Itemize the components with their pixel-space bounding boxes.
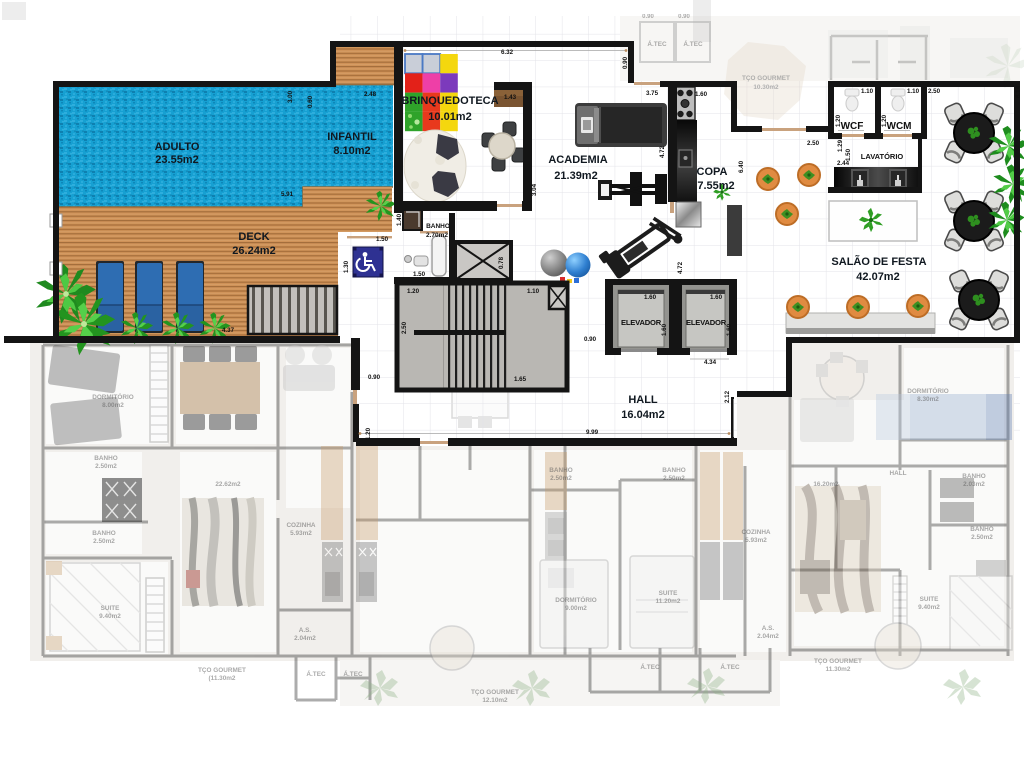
svg-text:4.72: 4.72 xyxy=(659,145,666,158)
svg-text:9.40m2: 9.40m2 xyxy=(918,604,940,611)
svg-text:DECK: DECK xyxy=(238,231,269,243)
svg-text:SUITE: SUITE xyxy=(659,590,679,597)
svg-text:2.03m2: 2.03m2 xyxy=(963,481,985,488)
svg-text:TÇO GOURMET: TÇO GOURMET xyxy=(742,75,790,82)
svg-text:9.40m2: 9.40m2 xyxy=(99,613,121,620)
svg-text:Á.TEC: Á.TEC xyxy=(647,39,667,48)
svg-text:0.90: 0.90 xyxy=(584,336,597,343)
svg-text:BANHO: BANHO xyxy=(662,467,685,474)
svg-text:1.50: 1.50 xyxy=(413,271,426,278)
svg-text:1.60: 1.60 xyxy=(695,91,708,98)
svg-text:1.20: 1.20 xyxy=(365,427,372,440)
svg-text:4.37: 4.37 xyxy=(222,327,235,334)
svg-text:2.50m2: 2.50m2 xyxy=(663,475,685,482)
svg-text:ADULTO: ADULTO xyxy=(155,141,200,153)
svg-text:LAVATÓRIO: LAVATÓRIO xyxy=(861,152,904,161)
svg-text:22.62m2: 22.62m2 xyxy=(215,481,241,488)
svg-text:42.07m2: 42.07m2 xyxy=(856,271,899,283)
svg-text:1.50: 1.50 xyxy=(376,236,389,243)
svg-text:0.90: 0.90 xyxy=(622,56,629,69)
svg-text:9.99: 9.99 xyxy=(586,429,599,436)
svg-text:8.00m2: 8.00m2 xyxy=(102,402,124,409)
svg-text:BANHO: BANHO xyxy=(92,530,115,537)
svg-text:1.10: 1.10 xyxy=(907,88,920,95)
svg-text:BANHO: BANHO xyxy=(426,223,450,230)
svg-text:SALÃO DE FESTA: SALÃO DE FESTA xyxy=(831,255,926,268)
svg-text:2.44: 2.44 xyxy=(837,160,850,167)
svg-text:1.10: 1.10 xyxy=(527,288,540,295)
svg-text:2.48: 2.48 xyxy=(364,91,377,98)
svg-text:ELEVADOR: ELEVADOR xyxy=(686,318,727,327)
svg-text:1.30: 1.30 xyxy=(343,260,350,273)
svg-text:BANHO: BANHO xyxy=(962,473,985,480)
svg-text:SUITE: SUITE xyxy=(920,596,940,603)
svg-text:2.12: 2.12 xyxy=(724,390,731,403)
svg-text:Á.TEC: Á.TEC xyxy=(306,669,326,678)
svg-text:COPA: COPA xyxy=(697,166,728,178)
svg-text:INFANTIL: INFANTIL xyxy=(327,131,377,143)
svg-text:1.20: 1.20 xyxy=(407,288,420,295)
svg-text:0.90: 0.90 xyxy=(678,14,690,20)
svg-text:DORMITÓRIO: DORMITÓRIO xyxy=(555,595,597,604)
svg-text:ACADEMIA: ACADEMIA xyxy=(548,154,607,166)
svg-text:HALL: HALL xyxy=(628,394,658,406)
svg-text:1.60: 1.60 xyxy=(644,294,657,301)
svg-text:0.90: 0.90 xyxy=(642,14,654,20)
svg-text:9.00m2: 9.00m2 xyxy=(565,605,587,612)
svg-text:2.50: 2.50 xyxy=(401,321,408,334)
svg-text:2.04m2: 2.04m2 xyxy=(294,635,316,642)
svg-text:BANHO: BANHO xyxy=(970,526,993,533)
svg-text:3.75: 3.75 xyxy=(646,90,659,97)
svg-text:4.72: 4.72 xyxy=(677,261,684,274)
svg-text:COZINHA: COZINHA xyxy=(741,529,770,536)
svg-text:BANHO: BANHO xyxy=(94,455,117,462)
svg-text:COZINHA: COZINHA xyxy=(286,522,315,529)
svg-text:5.93m2: 5.93m2 xyxy=(290,530,312,537)
svg-text:0.78: 0.78 xyxy=(498,256,505,269)
svg-text:1.20: 1.20 xyxy=(835,114,842,127)
svg-text:5.91: 5.91 xyxy=(281,191,294,198)
svg-text:Á.TEC: Á.TEC xyxy=(343,669,363,678)
svg-text:HALL: HALL xyxy=(889,470,906,477)
svg-text:3.00: 3.00 xyxy=(287,90,294,103)
svg-text:11.20m2: 11.20m2 xyxy=(656,598,681,605)
svg-text:A.S.: A.S. xyxy=(762,625,775,632)
svg-text:1.29: 1.29 xyxy=(837,139,844,152)
svg-text:BANHO: BANHO xyxy=(549,467,572,474)
svg-text:23.55m2: 23.55m2 xyxy=(155,154,198,166)
svg-text:A.S.: A.S. xyxy=(299,627,312,634)
svg-text:2.50m2: 2.50m2 xyxy=(95,463,117,470)
svg-text:8.10m2: 8.10m2 xyxy=(333,145,370,157)
svg-text:ELEVADOR: ELEVADOR xyxy=(621,318,662,327)
svg-text:BRINQUEDOTECA: BRINQUEDOTECA xyxy=(401,95,498,107)
svg-text:10.01m2: 10.01m2 xyxy=(428,111,471,123)
svg-text:DORMITÓRIO: DORMITÓRIO xyxy=(92,392,134,401)
svg-text:10.30m2: 10.30m2 xyxy=(753,84,779,91)
svg-text:11.30m2: 11.30m2 xyxy=(826,666,851,673)
svg-text:0.60: 0.60 xyxy=(307,95,314,108)
svg-text:1.60: 1.60 xyxy=(710,294,723,301)
svg-text:16.04m2: 16.04m2 xyxy=(621,409,664,421)
svg-text:1.60: 1.60 xyxy=(661,323,668,336)
svg-text:2.70m2: 2.70m2 xyxy=(426,232,448,239)
svg-text:1.43: 1.43 xyxy=(504,94,517,101)
svg-text:(11.30m2: (11.30m2 xyxy=(208,675,235,682)
svg-text:26.24m2: 26.24m2 xyxy=(232,245,275,257)
svg-text:TÇO GOURMET: TÇO GOURMET xyxy=(198,667,246,674)
svg-text:6.40: 6.40 xyxy=(738,160,745,173)
svg-text:6.32: 6.32 xyxy=(501,49,514,56)
svg-text:7.55m2: 7.55m2 xyxy=(697,180,734,192)
svg-text:Á.TEC: Á.TEC xyxy=(720,662,740,671)
svg-text:2.50m2: 2.50m2 xyxy=(550,475,572,482)
svg-text:3.04: 3.04 xyxy=(531,183,538,196)
svg-text:1.60: 1.60 xyxy=(726,323,733,336)
svg-text:1.20: 1.20 xyxy=(881,114,888,127)
svg-text:16.20m2: 16.20m2 xyxy=(813,481,839,488)
svg-text:0.90: 0.90 xyxy=(368,374,381,381)
svg-text:12.10m2: 12.10m2 xyxy=(482,697,508,704)
svg-text:TÇO GOURMET: TÇO GOURMET xyxy=(471,689,519,696)
svg-text:DORMITÓRIO: DORMITÓRIO xyxy=(907,386,949,395)
svg-text:8.30m2: 8.30m2 xyxy=(917,396,939,403)
svg-text:Á.TEC: Á.TEC xyxy=(640,662,660,671)
svg-text:4.34: 4.34 xyxy=(704,359,717,366)
svg-text:1.40: 1.40 xyxy=(396,213,403,226)
svg-text:5.93m2: 5.93m2 xyxy=(745,537,767,544)
svg-text:2.50m2: 2.50m2 xyxy=(93,538,115,545)
svg-text:2.50m2: 2.50m2 xyxy=(971,534,993,541)
svg-text:6.14: 6.14 xyxy=(1015,85,1022,98)
svg-text:SUITE: SUITE xyxy=(101,605,121,612)
svg-text:1.65: 1.65 xyxy=(514,376,527,383)
svg-text:2.50: 2.50 xyxy=(928,88,941,95)
svg-text:2.04m2: 2.04m2 xyxy=(757,633,779,640)
svg-text:2.50: 2.50 xyxy=(807,140,820,147)
svg-text:21.39m2: 21.39m2 xyxy=(554,170,597,182)
svg-text:1.10: 1.10 xyxy=(861,88,874,95)
svg-text:TÇO GOURMET: TÇO GOURMET xyxy=(814,658,862,665)
